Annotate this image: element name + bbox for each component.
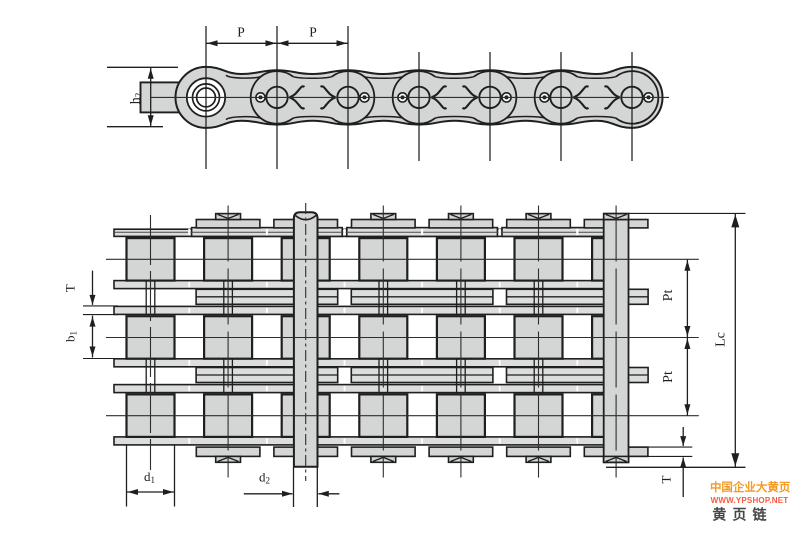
svg-text:d2: d2 [259,470,270,486]
svg-text:中国企业大黄页: 中国企业大黄页 [710,480,791,494]
svg-text:h2: h2 [129,93,144,105]
svg-text:P: P [237,25,245,40]
svg-text:d1: d1 [144,469,155,485]
svg-text:黄 页 链: 黄 页 链 [712,507,767,523]
svg-text:Pt: Pt [661,371,676,383]
svg-text:T: T [62,284,77,292]
svg-text:P: P [309,25,317,40]
svg-text:Lc: Lc [714,332,729,347]
svg-text:WWW.YPSHOP.NET: WWW.YPSHOP.NET [711,496,789,505]
svg-text:b1: b1 [62,331,78,342]
svg-text:Pt: Pt [661,290,676,302]
svg-text:T: T [659,475,674,483]
